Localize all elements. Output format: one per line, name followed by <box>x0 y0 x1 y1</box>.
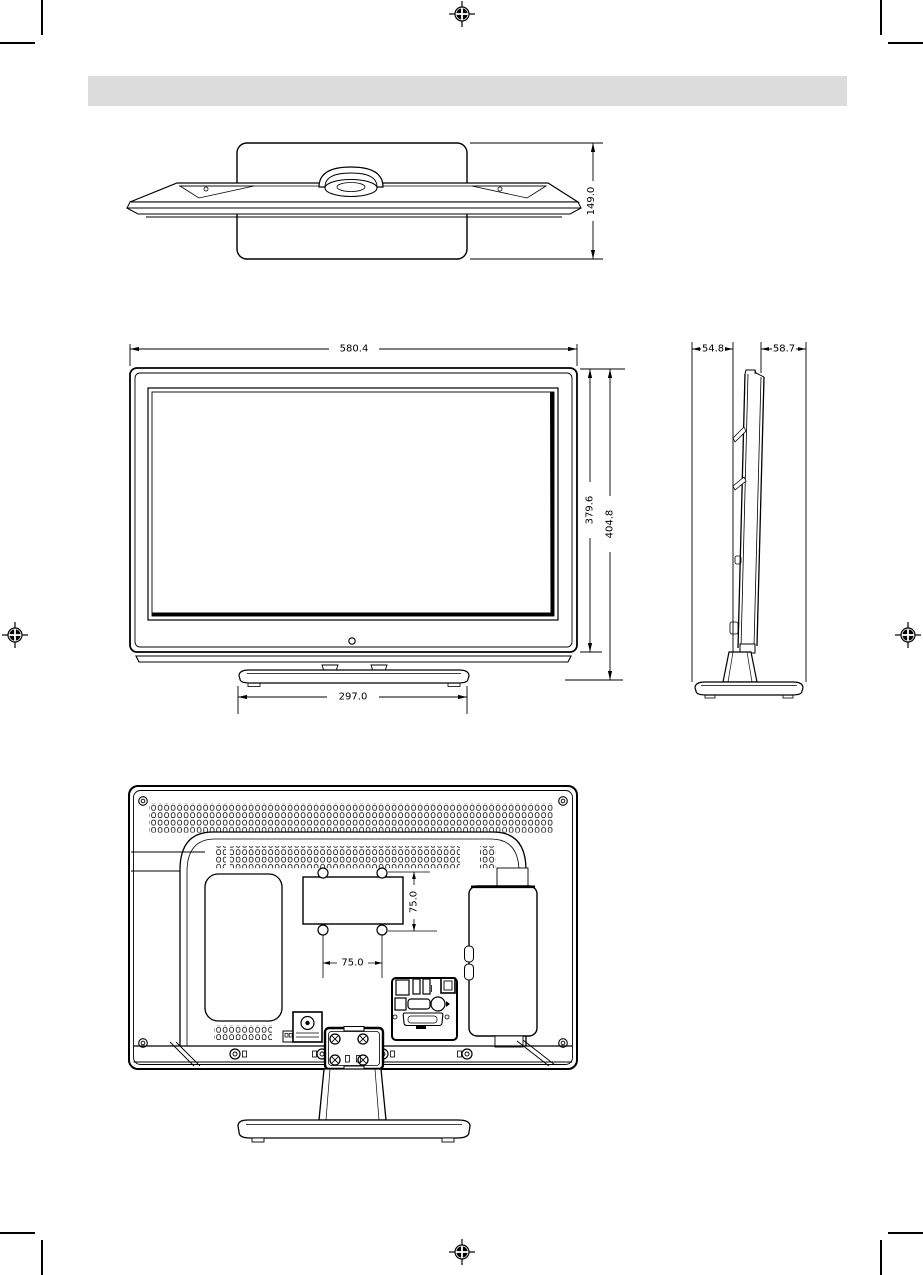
vesa-hole <box>318 868 328 878</box>
stand-mount-plate <box>325 1027 383 1071</box>
top-view-drawing: 149.0 <box>120 135 620 270</box>
dim-label-side-depth-front: 54.8 <box>702 344 724 355</box>
dim-side-depth-rear: 58.7 <box>761 343 806 355</box>
dim-label-front-height-total: 404.8 <box>605 510 616 539</box>
dim-label-front-height-panel: 379.6 <box>585 496 596 525</box>
dim-front-width: 580.4 <box>130 343 577 366</box>
stand-neck-top <box>319 167 383 197</box>
dim-label-top-depth: 149.0 <box>586 187 597 216</box>
dim-label-vesa-vertical: 75.0 <box>409 891 420 913</box>
dim-front-height-panel: 379.6 <box>580 369 625 652</box>
vent-grille-inner-right <box>480 846 496 868</box>
dim-label-front-width: 580.4 <box>340 344 369 355</box>
speaker-panel <box>205 874 282 1021</box>
header-bar <box>88 76 847 106</box>
io-panel <box>392 978 457 1040</box>
front-bottom-strip <box>136 656 571 662</box>
registration-mark-icon <box>447 1237 477 1267</box>
tv-side-profile <box>730 370 765 650</box>
stand-front <box>239 665 469 687</box>
dim-label-vesa-horizontal: 75.0 <box>341 958 363 969</box>
vent-grille-bottom-left <box>214 1025 272 1040</box>
vesa-hole <box>377 868 387 878</box>
dim-side-depth-front: 54.8 <box>692 343 733 355</box>
screen <box>148 388 558 620</box>
dim-label-stand-width: 297.0 <box>339 692 368 703</box>
front-view-drawing: 580.4 379.6 404.8 297.0 <box>120 340 660 720</box>
vent-grille-inner-left <box>216 846 226 868</box>
dim-stand-width: 297.0 <box>238 686 467 714</box>
registration-mark-icon <box>0 620 30 650</box>
rear-view-drawing: 75.0 75.0 <box>125 782 595 1157</box>
vent-grille-top <box>149 803 553 833</box>
registration-mark-icon <box>447 0 477 29</box>
vent-grille-inner <box>230 846 460 868</box>
registration-mark-icon <box>893 620 923 650</box>
dim-label-side-depth-rear: 58.7 <box>773 344 795 355</box>
vesa-hole <box>318 925 328 935</box>
stand-side <box>695 644 803 698</box>
side-view-drawing: 54.8 58.7 <box>680 330 825 695</box>
manual-page: 149.0 <box>0 0 923 1275</box>
stand-rear <box>238 1069 470 1142</box>
vesa-hole <box>377 925 387 935</box>
